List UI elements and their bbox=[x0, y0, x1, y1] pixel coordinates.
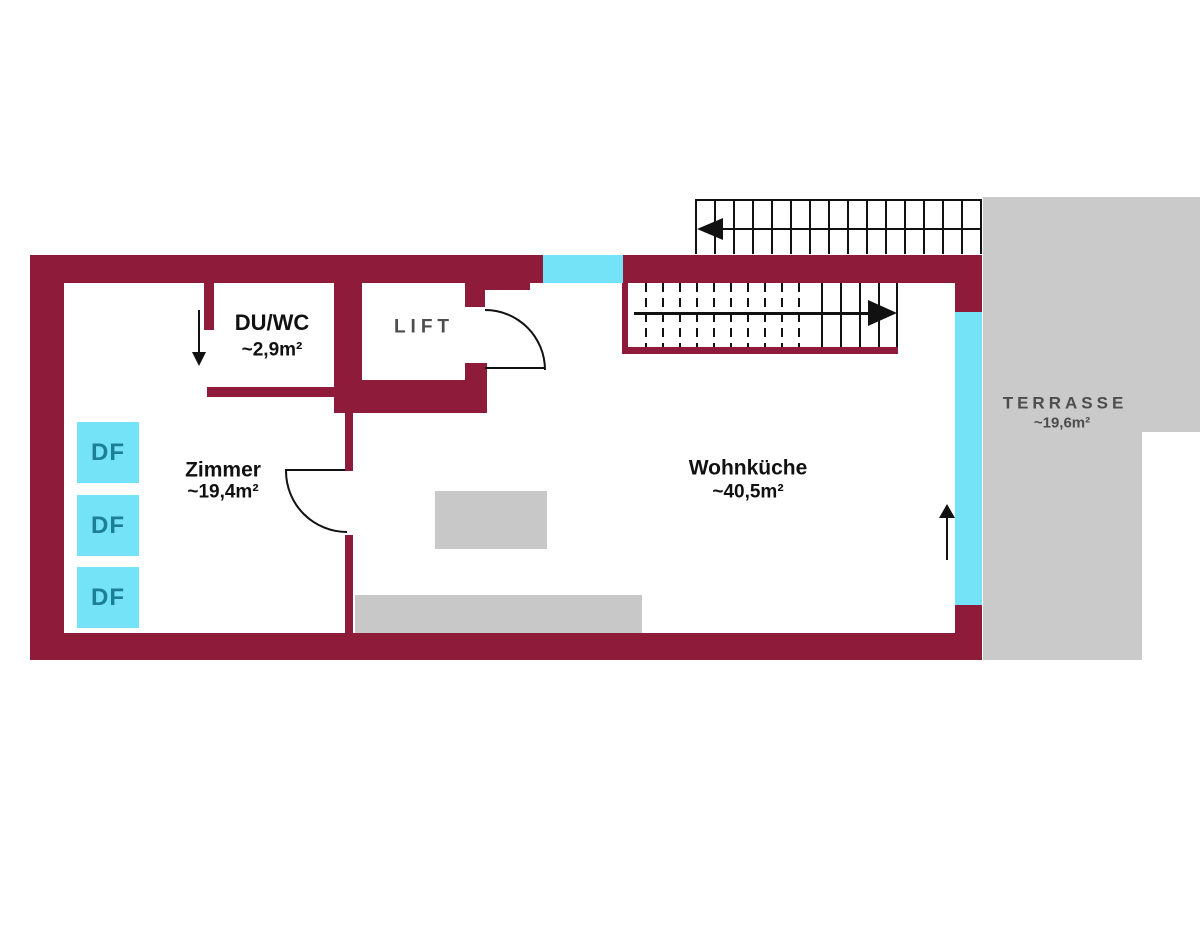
right-wall-lower-segment bbox=[955, 605, 982, 633]
interior-staircase-left-edge bbox=[622, 283, 628, 354]
kitchen-counter-block bbox=[355, 595, 642, 633]
zimmer-room-name: Zimmer bbox=[185, 460, 261, 481]
df-label: DF bbox=[91, 584, 125, 612]
entry-door-jamb bbox=[485, 282, 530, 290]
zimmer-partition-lower bbox=[345, 535, 353, 633]
duwc-room-name: DU/WC bbox=[235, 312, 310, 334]
duwc-room-area: ~2,9m² bbox=[242, 341, 303, 360]
bottom-wall bbox=[30, 633, 982, 660]
exterior-staircase bbox=[695, 199, 982, 254]
floor-plan: DF DF DF DU/WC ~2,9m² LIFT Zimmer ~19,4m… bbox=[0, 0, 1200, 943]
right-window bbox=[955, 312, 982, 605]
top-window bbox=[543, 255, 623, 283]
entry-door-swing-arc bbox=[485, 309, 546, 370]
lift-room-name: LIFT bbox=[394, 318, 454, 337]
duwc-bottom-wall bbox=[207, 387, 334, 397]
df-label: DF bbox=[91, 439, 125, 467]
lift-right-wall-lower bbox=[465, 363, 487, 413]
kitchen-island-block bbox=[435, 491, 547, 549]
duwc-entrance-arrow-down-icon bbox=[192, 352, 206, 366]
interior-staircase-bottom-edge bbox=[622, 347, 898, 354]
wohnkueche-room-area: ~40,5m² bbox=[712, 483, 783, 502]
staircase-arrow-right-icon bbox=[868, 300, 897, 326]
zimmer-door-leaf bbox=[285, 469, 345, 471]
lift-right-wall-upper bbox=[465, 280, 485, 307]
terrace-arrow-up-icon bbox=[939, 504, 955, 518]
right-wall-upper-segment bbox=[955, 283, 982, 312]
exterior-staircase-center-line bbox=[706, 228, 980, 230]
terrace-area-lower bbox=[983, 432, 1142, 660]
roof-window-df-2: DF bbox=[77, 495, 139, 556]
duwc-entrance-arrow-line bbox=[198, 310, 200, 353]
zimmer-door-swing-arc bbox=[285, 471, 347, 533]
top-wall-right-segment bbox=[623, 255, 982, 283]
top-wall-left-segment bbox=[30, 255, 543, 283]
df-label: DF bbox=[91, 512, 125, 540]
roof-window-df-3: DF bbox=[77, 567, 139, 628]
left-wall bbox=[30, 255, 64, 660]
interior-staircase-center-line bbox=[634, 312, 870, 315]
duwc-left-partition bbox=[204, 283, 214, 330]
zimmer-room-area: ~19,4m² bbox=[187, 483, 258, 502]
roof-window-df-1: DF bbox=[77, 422, 139, 483]
staircase-arrow-left-icon bbox=[697, 218, 723, 240]
entry-door-leaf bbox=[485, 367, 544, 369]
wohnkueche-room-name: Wohnküche bbox=[689, 458, 808, 479]
terrace-arrow-line bbox=[946, 517, 948, 560]
terrasse-room-area: ~19,6m² bbox=[1034, 416, 1090, 431]
zimmer-partition-upper bbox=[345, 413, 353, 471]
interior-staircase-dashed-treads bbox=[630, 283, 815, 347]
terrasse-room-name: TERRASSE bbox=[1003, 395, 1128, 412]
